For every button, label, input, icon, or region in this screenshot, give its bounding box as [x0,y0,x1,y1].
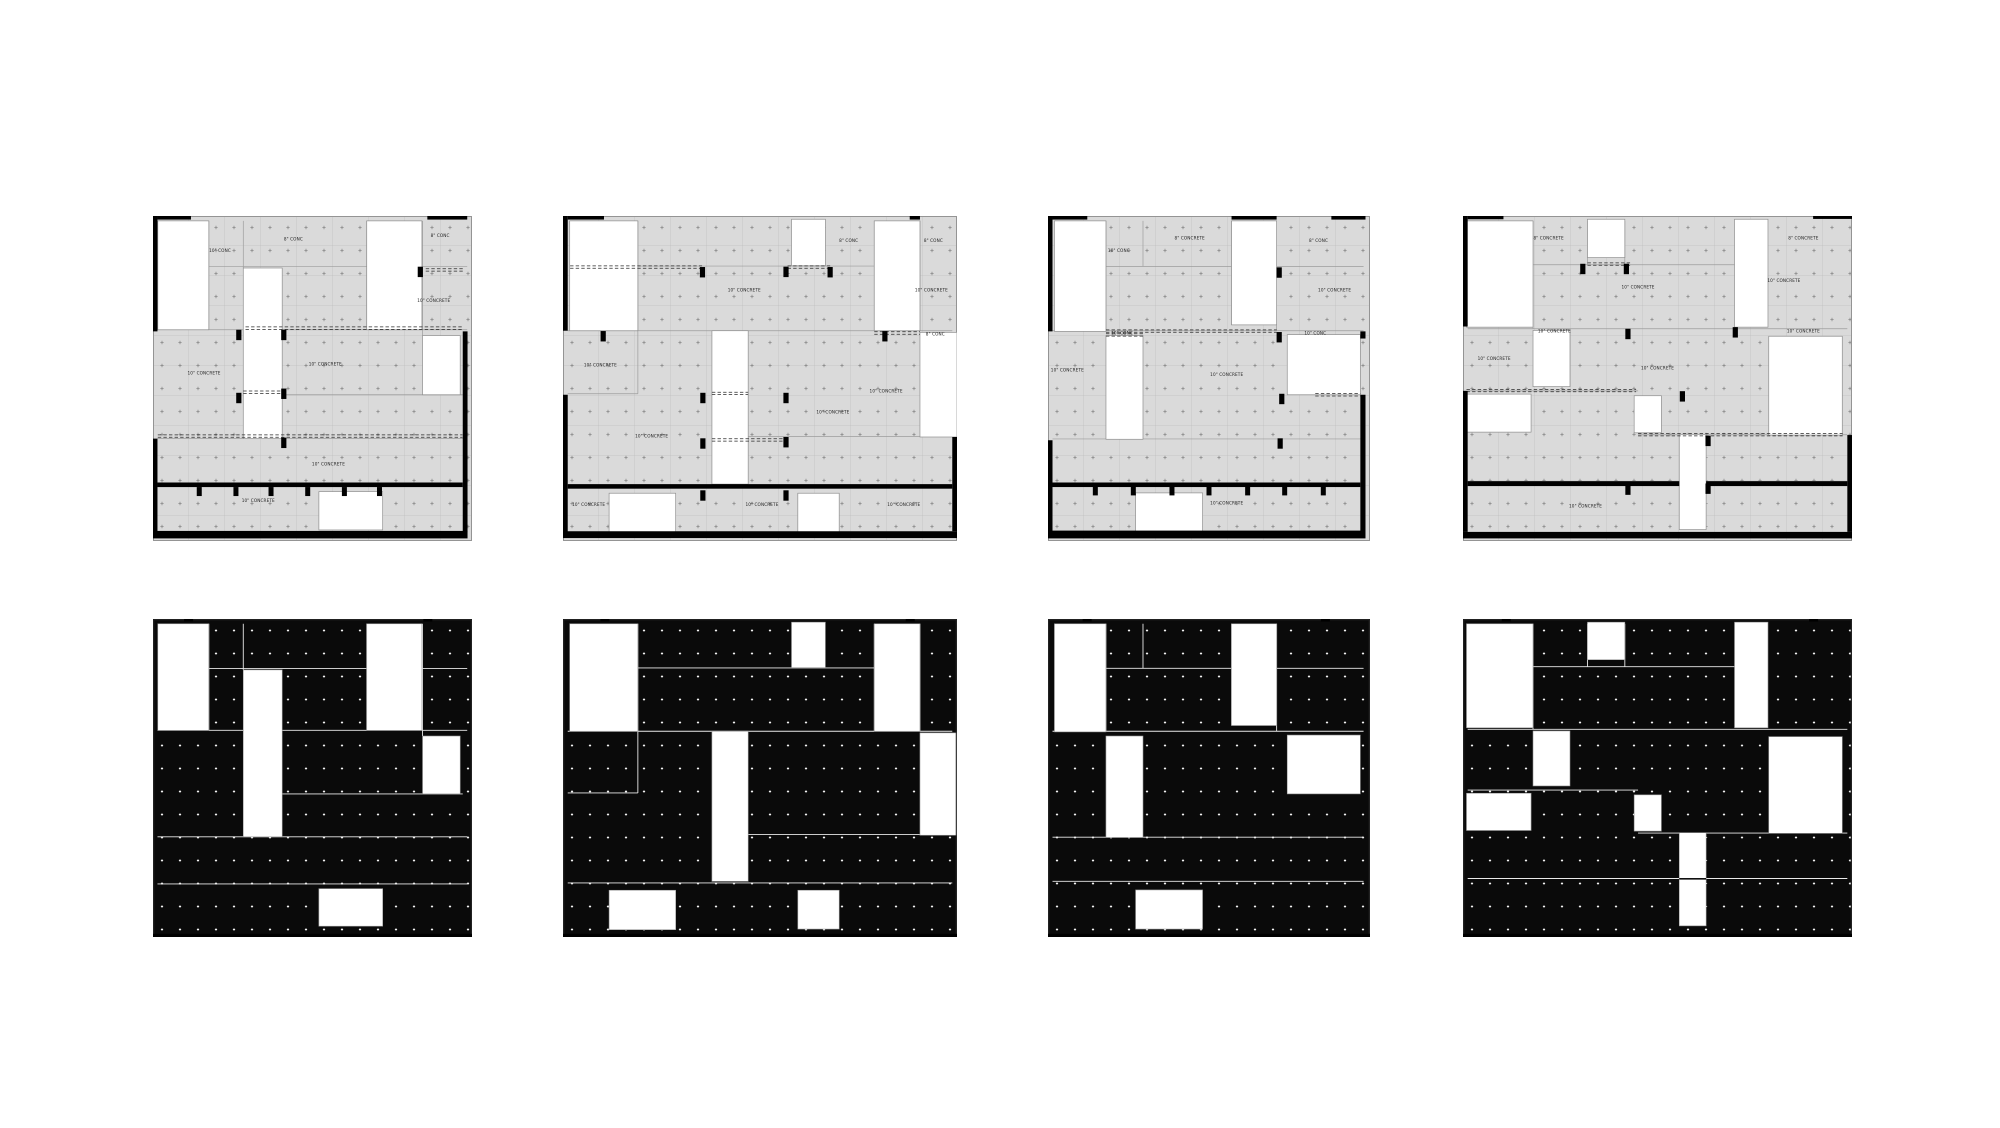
slab-label: 8" CONCRETE [1175,236,1206,241]
slab-opening [1287,335,1360,395]
slab-opening [570,624,638,731]
column-mark [700,267,705,277]
wall-segment [1053,483,1361,488]
slab-label: 10" CONCRETE [1478,356,1511,361]
slab-label: 8" CONC [926,332,945,337]
wall-segment [1053,216,1088,220]
slab-label: 8" CONCRETE [1788,236,1819,241]
slab-opening [1587,622,1624,660]
slab-label: 8" CONC [924,238,943,243]
plan-drawing: 8" CONCRETE8" CONCRETE10" CONCRETE10" CO… [1463,216,1852,541]
slab-opening [920,733,957,835]
wall-pier [1321,486,1326,495]
wall-segment [1360,331,1365,338]
wall-segment [563,216,568,331]
slab-label: 10" CONC [1108,248,1130,253]
wall-segment [463,331,468,532]
wall-corner-tick [1083,619,1092,622]
slab-label: 8" CONC [431,233,450,238]
drawing-canvas: 8" CONC10" CONC8" CONC10" CONCRETE10" CO… [0,0,2000,1128]
plan-drawing: 8" CONC8" CONC10" CONCRETE10" CONCRETE8"… [563,216,957,541]
slab-label: 10" CONCRETE [242,498,275,503]
wall-corner-tick [906,619,915,622]
wall-segment [157,483,462,488]
wall-pier [1282,486,1287,495]
slab-label: 10" CONCRETE [1210,500,1243,505]
wall-corner-tick [600,619,609,622]
wall-segment [568,216,604,220]
slab-opening [1679,434,1706,529]
slab-opening [1769,336,1843,435]
slab-opening [792,219,826,265]
slab-opening [243,670,282,837]
column-mark [236,330,241,340]
slab-label: 10" CONCRETE [1787,328,1820,333]
column-mark [1625,329,1630,339]
slab-opening [1287,735,1360,794]
slab-opening [798,493,839,533]
floor-plan-plan-3: 8" CONCRETE10" CONC8" CONC10" CONCRETE10… [1048,216,1370,541]
wall-pier [342,487,347,496]
column-mark [1624,264,1629,274]
wall-segment [952,437,957,531]
wall-segment [427,216,467,220]
wall-segment [1048,531,1365,539]
slab-opening [1587,219,1624,257]
slab-opening [158,624,209,731]
slab-opening [1769,737,1843,834]
column-mark [1277,332,1282,342]
slab-opening [1136,493,1203,533]
wall-segment [1360,395,1365,532]
wall-corner-tick [1321,619,1330,622]
plan-drawing [153,619,472,937]
slab-opening [920,332,957,437]
floor-plan-plan-4: 8" CONCRETE8" CONCRETE10" CONCRETE10" CO… [1463,216,1852,541]
slab-label: 10" CONCRETE [870,388,903,393]
wall-segment [1331,216,1365,220]
wall-segment [1468,216,1504,219]
wall-segment [153,531,468,538]
column-mark [882,331,887,341]
slab-opening [367,624,422,731]
column-mark [828,267,833,277]
slab-label: 10" CONCRETE [915,288,948,293]
wall-corner-tick [1502,619,1511,622]
slab-label: 8" CONC [839,238,858,243]
slab-label: 10" CONCRETE [1318,287,1351,292]
wall-corner-tick [184,619,193,622]
slab-opening [1533,330,1570,386]
slab-label: 10" CONCRETE [816,410,849,415]
column-mark [700,438,705,448]
slab-label: 8" CONCRETE [1533,236,1564,241]
slab-label: 10" CONCRETE [745,502,778,507]
slab-opening [1106,336,1143,440]
column-mark [1580,264,1585,274]
wall-pier [377,487,382,496]
column-mark [1680,391,1685,401]
slab-label: 10" CONCRETE [1210,372,1243,377]
column-mark [700,393,705,403]
floor-plan-solid-1 [153,619,472,937]
column-mark [281,330,286,340]
plan-drawing [1048,619,1370,937]
slab-opening [1106,736,1143,837]
column-mark [281,389,286,399]
wall-segment [1463,391,1468,532]
wall-segment [1232,216,1277,220]
plan-base-line [563,934,957,937]
slab-opening [1467,394,1532,432]
column-mark [783,393,788,403]
slab-opening [319,492,383,530]
wall-segment [1813,216,1852,219]
slab-opening [792,622,826,667]
wall-pier [1245,486,1250,495]
slab-label: 10" CONCRETE [312,462,345,467]
wall-segment [1048,216,1053,331]
slab-label: 8" CONC [284,236,303,241]
slab-opening [609,493,676,533]
slab-opening [712,331,748,484]
column-mark [700,490,705,500]
column-mark [1705,483,1710,493]
wall-pier [269,487,274,496]
wall-corner-tick [1809,619,1818,622]
slab-opening [1634,795,1661,831]
wall-pier [197,487,202,496]
wall-pier [305,487,310,496]
column-mark [601,331,606,341]
floor-plan-plan-2: 8" CONC8" CONC10" CONCRETE10" CONCRETE8"… [563,216,957,541]
slab-label: 10" CONC [1111,331,1133,336]
slab-opening [1467,624,1534,728]
wall-segment [1847,435,1852,532]
slab-opening [367,221,422,330]
slab-label: 10" CONCRETE [1569,504,1602,509]
slab-opening [1467,221,1534,327]
floor-plan-plan-1: 8" CONC10" CONC8" CONC10" CONCRETE10" CO… [153,216,472,541]
plan-base-line [1463,934,1852,937]
plan-drawing [1463,619,1852,937]
slab-label: 10" CONCRETE [1641,366,1674,371]
slab-label: 10" CONCRETE [309,362,342,367]
slab-opening [1232,221,1277,325]
column-mark [1625,484,1630,494]
slab-opening [1467,793,1532,830]
slab-opening [319,889,383,927]
floor-plan-solid-4 [1463,619,1852,937]
slab-label: 10" CONCRETE [1051,367,1084,372]
slab-opening [243,268,282,439]
slab-opening [1634,396,1661,433]
slab-opening [570,221,638,331]
slab-label: 10" CONCRETE [1622,284,1655,289]
plan-drawing: 8" CONC10" CONC8" CONC10" CONCRETE10" CO… [153,216,472,541]
wall-segment [1706,481,1847,486]
floor-plan-solid-3 [1048,619,1370,937]
column-mark [783,437,788,447]
wall-segment [1463,216,1468,327]
wall-segment [157,216,190,220]
wall-corner-tick [423,619,432,622]
plan-base-line [153,934,472,937]
column-mark [783,490,788,500]
slab-label: 10" CONCRETE [417,298,450,303]
slab-opening [1136,890,1203,929]
column-mark [236,393,241,403]
slab-label: 10" CONCRETE [887,502,920,507]
slab-opening [1533,731,1570,786]
column-mark [1733,327,1738,337]
slab-opening [1054,221,1106,332]
slab-opening [1735,622,1768,728]
slab-label: 10" CONCRETE [584,362,617,367]
plan-drawing [563,619,957,937]
slab-opening [158,221,209,330]
slab-opening [1232,624,1277,726]
column-mark [1279,394,1284,404]
wall-pier [1093,486,1098,495]
slab-opening [712,731,748,881]
column-mark [418,267,423,277]
wall-segment [563,395,568,534]
wall-segment [568,484,953,489]
slab-opening [609,890,676,929]
wall-pier [1169,486,1174,495]
wall-segment [563,531,957,538]
column-mark [1278,438,1283,448]
slab-opening [798,890,839,929]
wall-segment [1048,440,1053,532]
slab-label: 10" CONCRETE [1767,278,1800,283]
floor-plan-solid-2 [563,619,957,937]
slab-opening [423,336,461,395]
slab-label: 10" CONCRETE [1538,328,1571,333]
column-mark [1705,436,1710,446]
wall-segment [153,216,157,331]
slab-label: 8" CONC [1309,238,1328,243]
column-mark [783,267,788,277]
slab-label: 10" CONCRETE [635,434,668,439]
slab-label: 10" CONC [1304,331,1326,336]
slab-label: 10" CONCRETE [188,371,221,376]
slab-opening [874,624,920,731]
slab-label: 10" CONC [209,248,231,253]
slab-opening [1735,219,1768,327]
slab-opening [874,221,920,331]
wall-segment [153,439,157,533]
plan-drawing: 8" CONCRETE10" CONC8" CONC10" CONCRETE10… [1048,216,1370,541]
plan-base-line [1048,934,1370,937]
slab-label: 10" CONCRETE [728,288,761,293]
column-mark [281,438,286,448]
wall-pier [1207,486,1212,495]
slab-opening [1054,624,1106,732]
wall-segment [910,216,920,220]
slab-opening [423,736,461,794]
wall-pier [1131,486,1136,495]
wall-pier [233,487,238,496]
wall-segment [1468,481,1680,486]
column-mark [1277,267,1282,277]
slab-label: 10" CONCRETE [572,502,605,507]
wall-segment [1463,532,1852,539]
